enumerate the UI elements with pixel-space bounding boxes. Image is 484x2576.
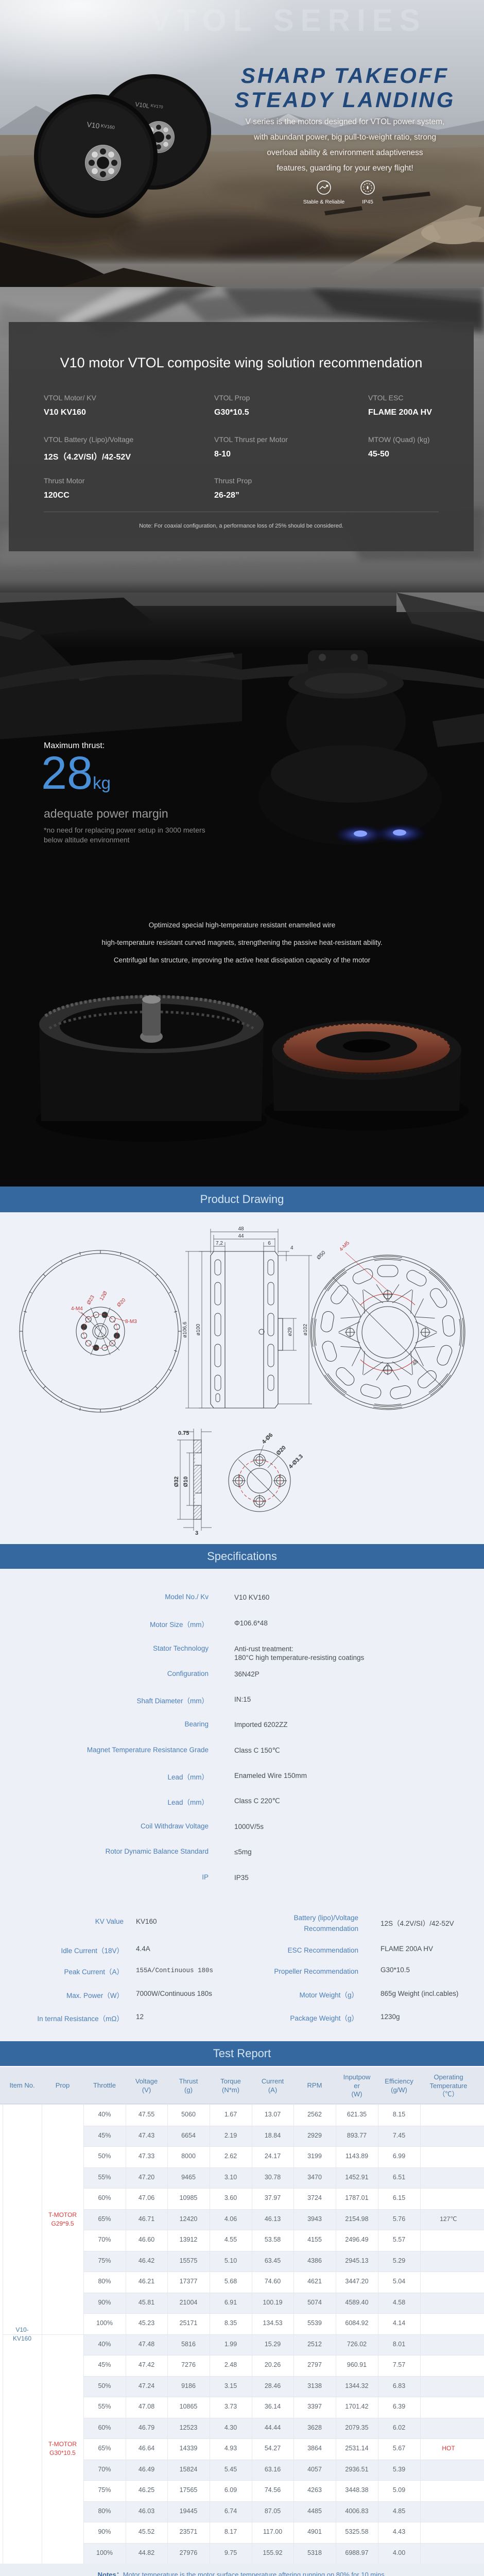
svg-text:3: 3 [195,1530,198,1536]
svg-text:ø106,6: ø106,6 [182,1321,188,1338]
svg-text:8-M3: 8-M3 [125,1319,137,1325]
svg-text:VTOL SERIES: VTOL SERIES [150,3,427,38]
svg-text:ø29: ø29 [287,1327,293,1336]
svg-text:Ø10: Ø10 [183,1477,189,1487]
svg-text:48: 48 [238,1226,244,1232]
svg-text:48: 48 [411,1359,420,1367]
svg-text:4-Ø6: 4-Ø6 [261,1432,274,1445]
svg-text:Ø20: Ø20 [116,1297,127,1308]
svg-text:0.75: 0.75 [178,1430,189,1436]
svg-text:4-Ø3.3: 4-Ø3.3 [288,1453,304,1470]
svg-text:Ø50: Ø50 [316,1250,326,1261]
svg-text:ø102: ø102 [303,1324,308,1335]
svg-text:4-M4: 4-M4 [71,1306,83,1312]
svg-text:6: 6 [268,1241,271,1246]
svg-text:7,2: 7,2 [216,1241,223,1246]
svg-text:12Ø: 12Ø [99,1290,109,1301]
svg-text:ø100: ø100 [196,1324,201,1335]
svg-text:Ø23: Ø23 [86,1294,96,1306]
svg-text:Ø20: Ø20 [275,1445,287,1456]
svg-text:Ø32: Ø32 [174,1477,180,1487]
svg-text:4-M5: 4-M5 [338,1240,351,1252]
svg-text:4: 4 [290,1245,293,1251]
svg-text:44: 44 [238,1233,244,1239]
